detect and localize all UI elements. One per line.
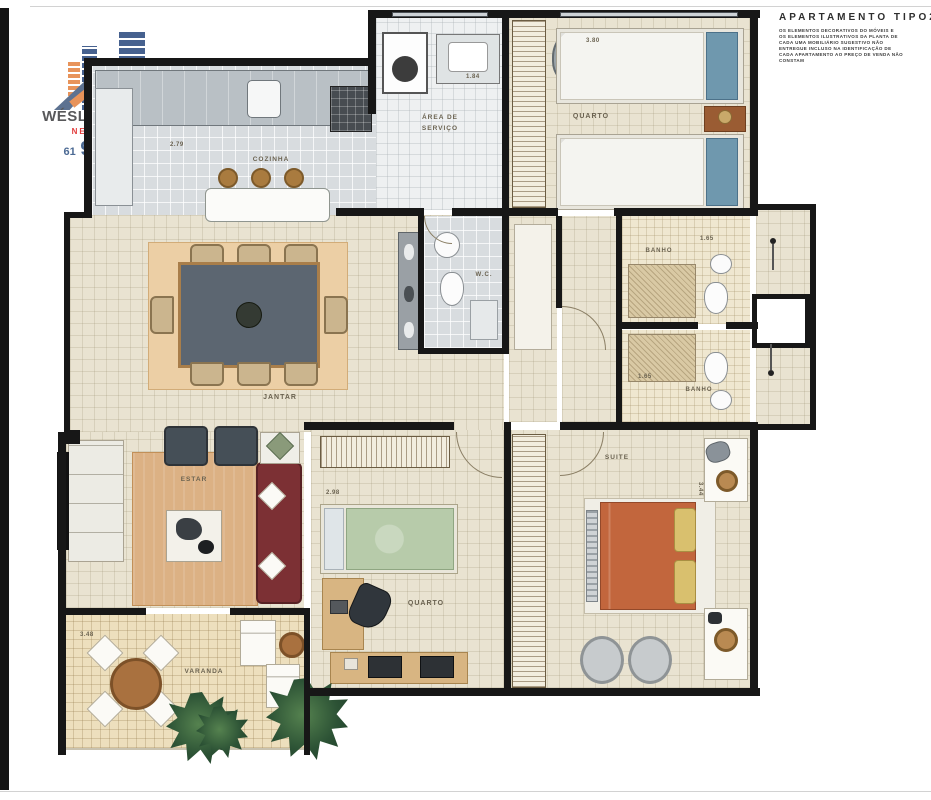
wall [560,422,758,430]
round-chair [580,636,624,684]
bed-pillow [324,508,344,570]
cabinet-knob [404,286,414,302]
room-label-quarto-1: QUARTO [556,112,626,122]
dim-banho-1: 1.65 [700,236,714,242]
wall [304,608,310,755]
planter-pot [279,632,305,658]
wardrobe [320,436,450,468]
kitchen-counter-left [95,88,133,206]
dresser-tv [420,656,454,678]
armchair [214,426,258,466]
corridor-door-panel [514,224,552,350]
wall [750,424,816,430]
kitchen-stove [330,86,372,132]
room-label-banho-2: BANHO [672,385,726,395]
room-label-suite: SUITE [592,453,642,463]
armchair [164,426,208,466]
tv-cabinet [68,440,124,562]
wc-toilet [440,272,464,306]
dim-cozinha: 2.79 [170,142,184,148]
wall [622,322,698,329]
bed-pillow-yellow [674,508,696,552]
wall [750,428,758,696]
wall [58,432,66,755]
bath-sink [710,254,732,274]
cabinet-knob [404,322,414,338]
door-pivot-dot [768,370,774,376]
cabinet-knob [404,244,414,260]
wall [504,422,511,695]
bed-bench [586,510,598,602]
bar-stool [251,168,271,188]
door-leaf-line [770,344,772,370]
wall [304,422,454,430]
wall [418,216,424,354]
room-label-estar: ESTAR [166,475,222,485]
wall [750,10,758,214]
wall [84,58,92,218]
wall [230,608,310,615]
room-label-servico: ÁREA DE SERVIÇO [414,112,466,134]
wall [726,322,758,329]
bed-mattress-green [346,508,454,570]
dim-quarto-2: 2.98 [326,490,340,496]
wall-column [64,430,80,444]
room-label-quarto-2: QUARTO [386,599,466,609]
toilet [704,352,728,384]
wall [810,204,816,430]
table-centerpiece [236,302,262,328]
wall [64,215,70,432]
coffee-table-decor [198,540,214,554]
nightstand-lamp [718,110,732,124]
wall [304,688,760,696]
sofa [256,462,302,604]
window [560,12,738,17]
dim-varanda: 3.48 [80,632,94,638]
dresser-tv [368,656,402,678]
patio-table [110,658,162,710]
dining-chair [150,296,174,334]
wall [336,208,424,216]
bed-pillow-blue [706,32,738,100]
laundry-basin [448,42,488,72]
dining-chair [237,362,271,386]
wardrobe [512,20,546,208]
dim-banho-2: 1.65 [638,374,652,380]
lounge-chair [240,620,276,666]
wall [502,216,509,354]
wall [58,608,146,615]
dim-servico: 1.84 [466,74,480,80]
room-label-varanda: VARANDA [168,667,240,677]
single-bed-mattress [560,138,704,206]
wall [750,204,816,210]
wall [502,10,509,216]
dresser-phone [344,658,358,670]
dining-chair [324,296,348,334]
wc-counter [470,300,498,340]
shower-box [628,264,696,318]
window [392,12,488,17]
coffee-table-decor [176,518,202,540]
wardrobe [512,434,546,688]
kitchen-island [205,188,330,222]
desk-laptop [330,600,348,614]
kitchen-sink [247,80,281,118]
door-leaf-line [772,244,774,270]
bar-stool [284,168,304,188]
room-label-wc: W.C. [464,270,504,280]
floor-plan: COZINHA 2.79 ÁREA DE SERVIÇO 1.84 QUARTO… [0,0,931,800]
washing-machine-door [392,56,418,82]
room-label-cozinha: COZINHA [236,155,306,165]
wall [84,58,376,66]
bed-pillow-yellow [674,560,696,604]
duct-shaft [752,294,810,348]
flyer-page: { "branding": { "name": "WÉSLEY DE OLLIV… [0,0,931,800]
round-chair [628,636,672,684]
wall [614,208,758,216]
dining-chair [190,362,224,386]
wall [452,208,558,216]
wall [556,216,562,308]
single-bed-mattress [560,32,704,100]
nightstand-decor [708,612,722,624]
table-lamp [716,470,738,492]
room-label-jantar: JANTAR [240,393,320,403]
bar-stool [218,168,238,188]
room-label-banho-1: BANHO [632,246,686,256]
dim-quarto-1: 3.80 [586,38,600,44]
wall [418,348,509,354]
bed-pillow-blue [706,138,738,206]
table-lamp [714,628,738,652]
toilet [704,282,728,314]
dining-chair [284,362,318,386]
dim-suite: 3.44 [697,482,703,496]
